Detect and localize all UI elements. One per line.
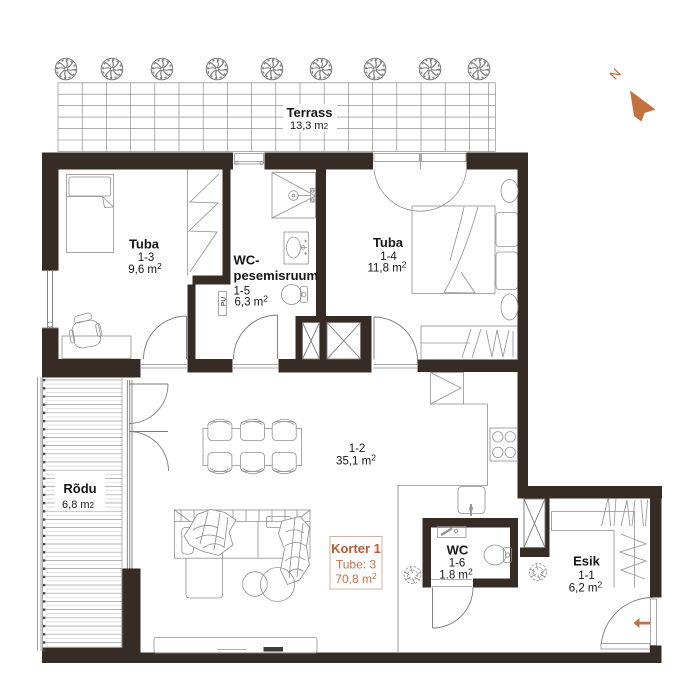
svg-text:13,3 m2: 13,3 m2 bbox=[290, 120, 329, 132]
svg-text:35,1 m2: 35,1 m2 bbox=[336, 453, 376, 468]
svg-text:11,8 m2: 11,8 m2 bbox=[367, 260, 406, 275]
svg-text:6,3 m2: 6,3 m2 bbox=[235, 294, 269, 309]
svg-text:6,8 m2: 6,8 m2 bbox=[62, 499, 95, 511]
svg-text:1-3: 1-3 bbox=[138, 252, 155, 264]
svg-text:1-2: 1-2 bbox=[349, 443, 366, 455]
svg-text:PU: PU bbox=[221, 297, 228, 306]
svg-text:Rõdu: Rõdu bbox=[63, 481, 96, 496]
svg-text:Korter 1: Korter 1 bbox=[331, 541, 381, 556]
svg-text:6,2 m2: 6,2 m2 bbox=[569, 580, 603, 595]
svg-text:1-6: 1-6 bbox=[449, 558, 466, 570]
svg-text:Tuba: Tuba bbox=[129, 237, 160, 252]
svg-text:WC-: WC- bbox=[234, 253, 260, 268]
svg-text:9,6 m2: 9,6 m2 bbox=[128, 261, 162, 276]
svg-text:pesemisruum: pesemisruum bbox=[234, 268, 319, 283]
svg-text:Esik: Esik bbox=[573, 554, 601, 569]
svg-text:70,8 m2: 70,8 m2 bbox=[335, 571, 377, 586]
svg-text:1-1: 1-1 bbox=[578, 570, 595, 582]
svg-text:Terrass: Terrass bbox=[286, 105, 332, 120]
svg-text:Tuba: Tuba bbox=[373, 235, 404, 250]
svg-text:Tube: 3: Tube: 3 bbox=[336, 558, 377, 572]
svg-text:WC: WC bbox=[447, 543, 469, 558]
svg-text:1-4: 1-4 bbox=[380, 251, 397, 263]
